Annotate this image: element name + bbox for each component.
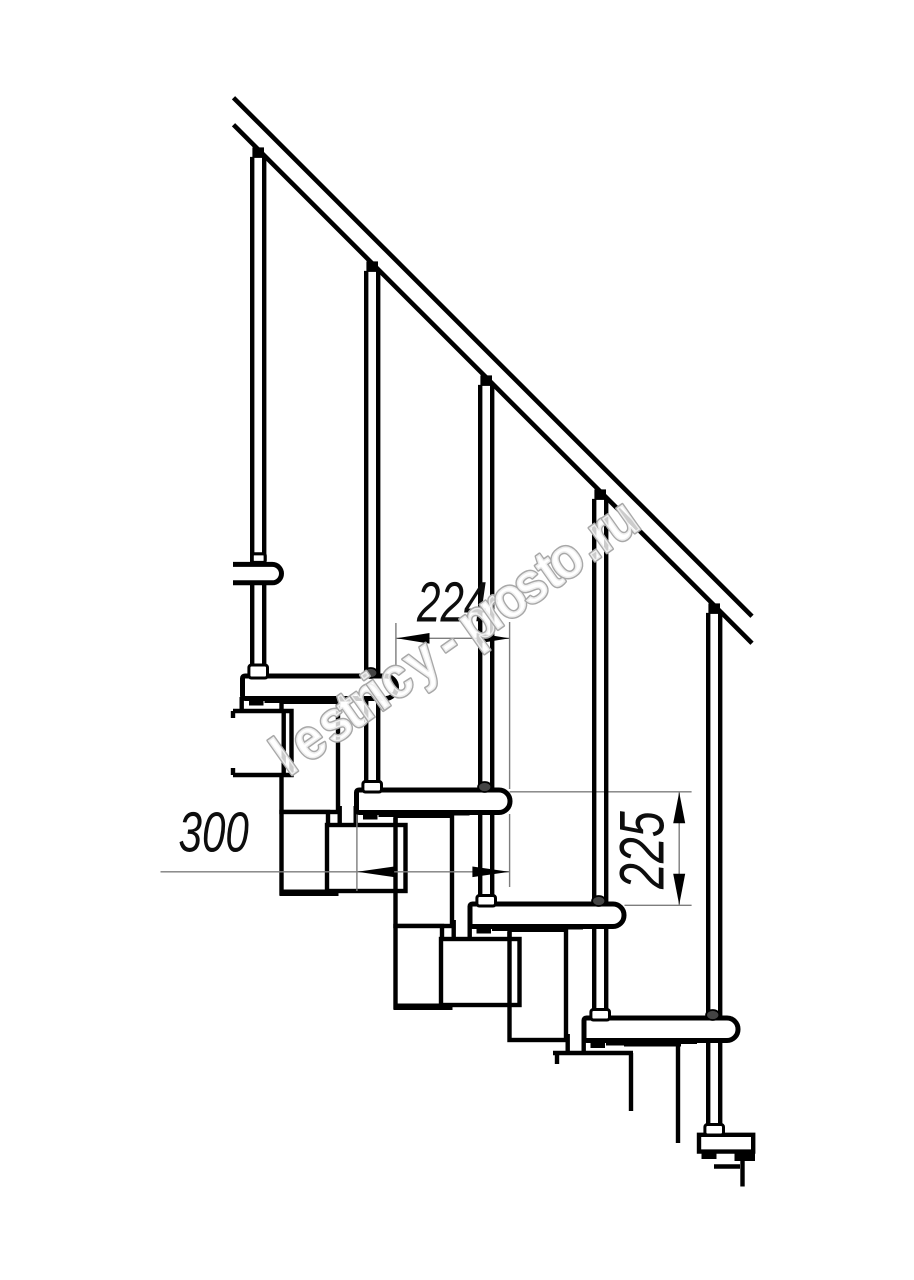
svg-text:225: 225 [607, 811, 677, 890]
svg-text:300: 300 [179, 800, 249, 864]
